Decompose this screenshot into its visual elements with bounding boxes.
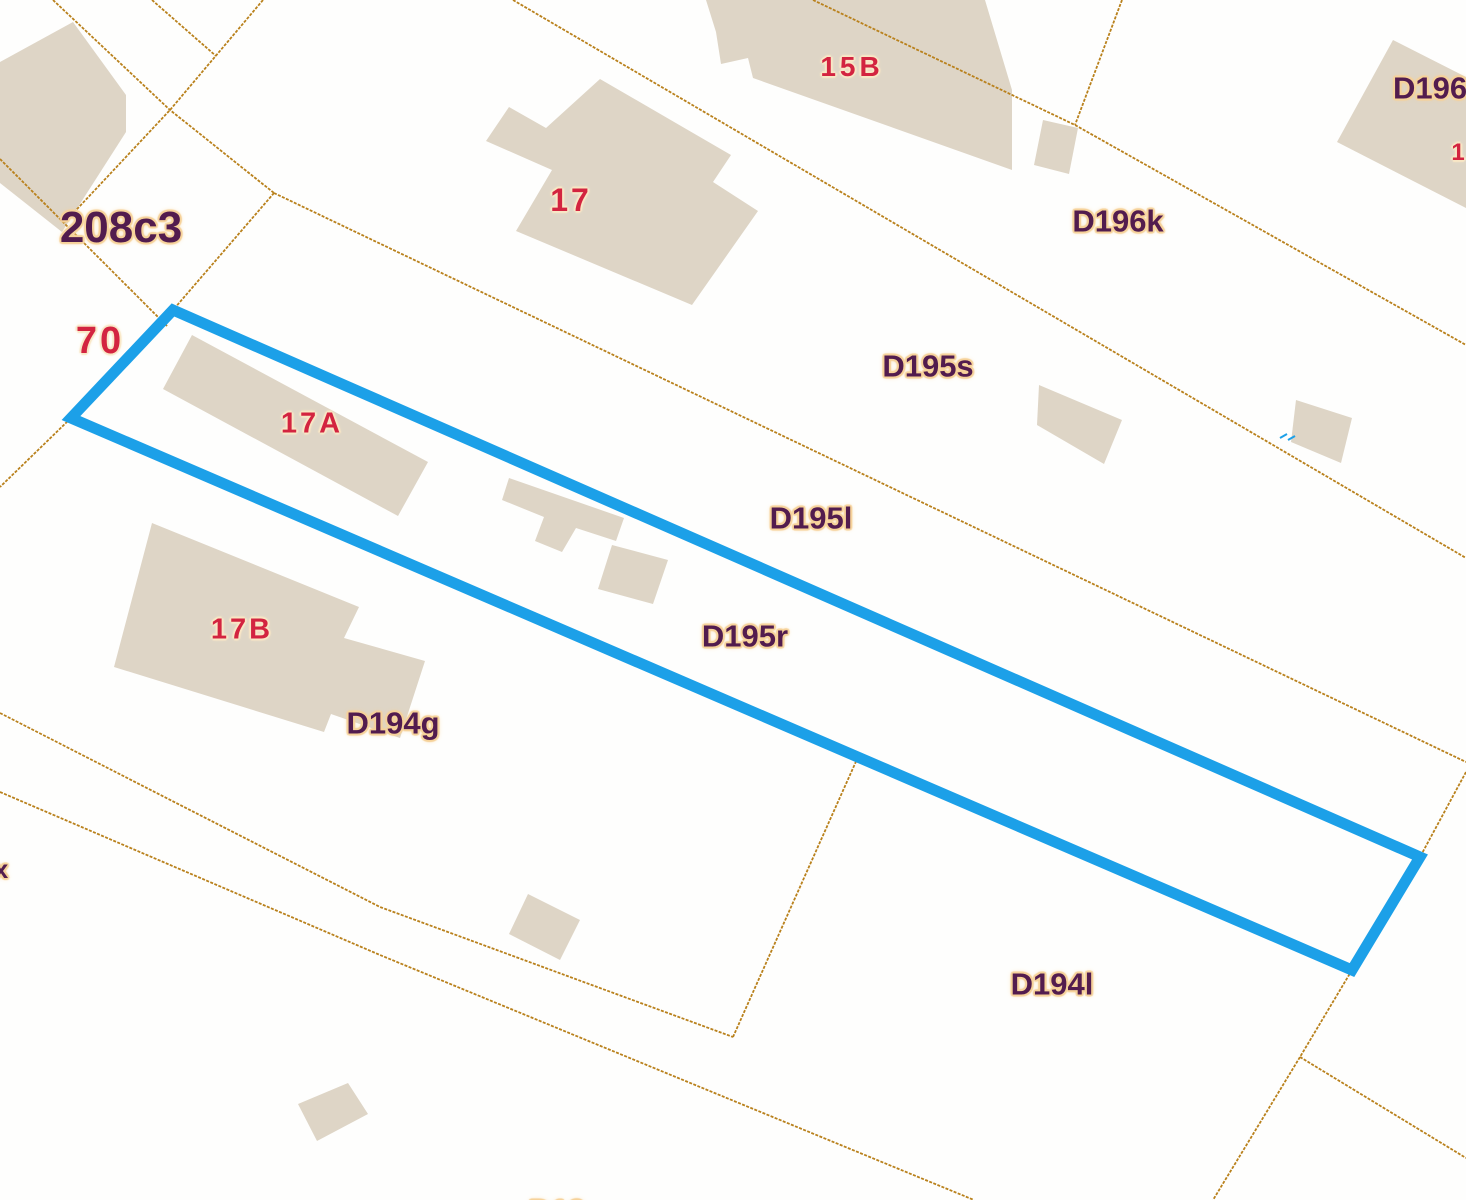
map-canvas[interactable]: 208c3 70 17 15B D196 1 D196k D195s 17A D… bbox=[0, 0, 1466, 1200]
outbuilding bbox=[1034, 120, 1078, 174]
building-15B bbox=[706, 0, 1012, 170]
building-D196 bbox=[1337, 40, 1466, 208]
house-number-70: 70 bbox=[76, 322, 124, 360]
building-17 bbox=[486, 79, 758, 305]
parcel-label-clipped-left: x bbox=[0, 856, 8, 882]
parcel-label-clipped-bottom: D19 bbox=[529, 1196, 586, 1200]
building-208c3 bbox=[0, 22, 126, 232]
parcel-label-D195r: D195r bbox=[702, 621, 788, 652]
outbuilding bbox=[509, 894, 580, 960]
house-number-15B: 15B bbox=[820, 53, 883, 81]
parcel-boundary-line bbox=[0, 713, 733, 1037]
parcel-boundary-line bbox=[152, 0, 216, 56]
parcel-boundary-line bbox=[0, 792, 974, 1200]
house-number-17B: 17B bbox=[211, 616, 273, 645]
parcel-boundary-line bbox=[1300, 1057, 1466, 1158]
parcel-label-D194l: D194l bbox=[1011, 969, 1094, 1000]
outbuilding bbox=[298, 1083, 368, 1141]
parcel-boundary-line bbox=[733, 757, 858, 1037]
parcel-boundary-line bbox=[274, 193, 1466, 762]
parcel-label-208c3: 208c3 bbox=[60, 206, 182, 250]
parcel-label-D195s: D195s bbox=[882, 351, 973, 382]
outbuilding bbox=[1291, 400, 1352, 463]
house-number-17A: 17A bbox=[281, 410, 343, 439]
outbuilding bbox=[502, 478, 624, 552]
house-number-17: 17 bbox=[550, 184, 592, 216]
buildings-layer bbox=[0, 0, 1466, 1141]
house-number-clipped: 1 bbox=[1451, 141, 1464, 165]
parcel-map-svg bbox=[0, 0, 1466, 1200]
parcel-boundary-line bbox=[1075, 0, 1122, 125]
outbuilding bbox=[1037, 385, 1122, 464]
parcel-label-D196k: D196k bbox=[1072, 206, 1163, 237]
parcel-label-D195l: D195l bbox=[770, 503, 853, 534]
parcel-label-D196-clipped: D196 bbox=[1393, 73, 1466, 104]
parcel-label-D194g: D194g bbox=[346, 708, 439, 739]
outbuilding bbox=[598, 545, 668, 604]
